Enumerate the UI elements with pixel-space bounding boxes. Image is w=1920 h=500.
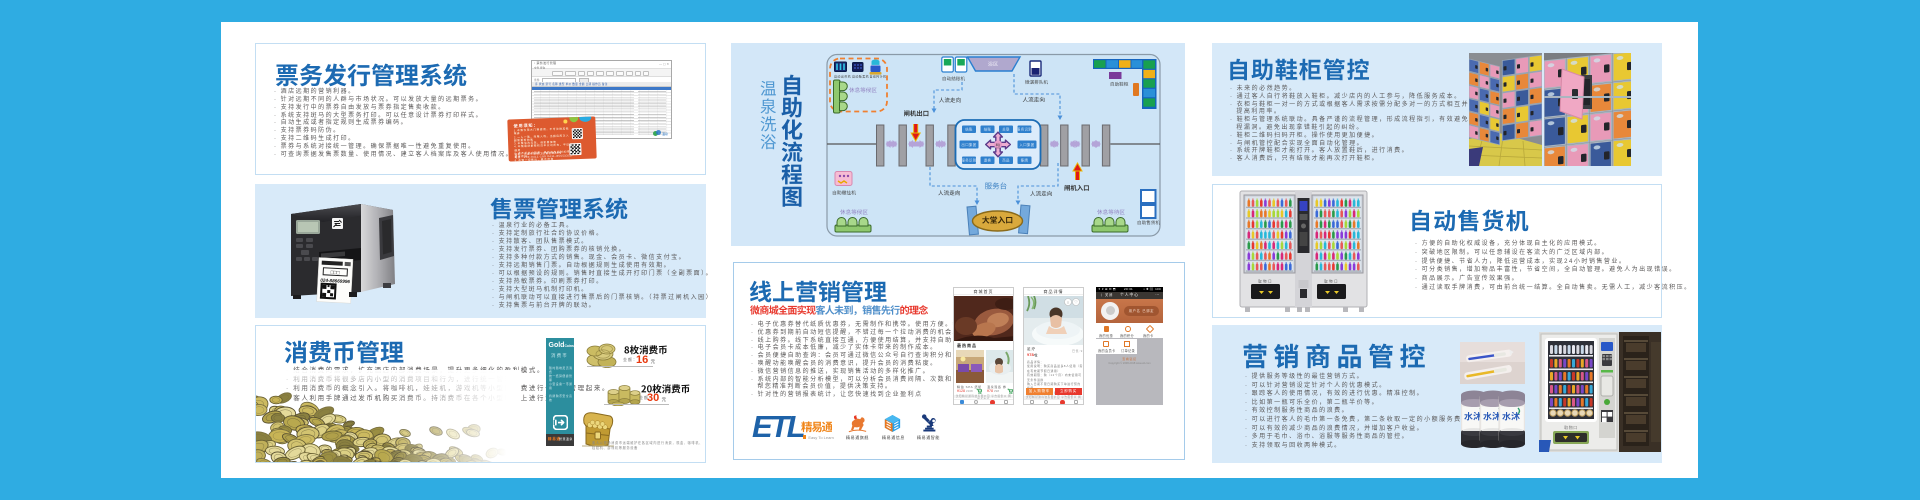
svg-text:取物口: 取物口 [1564, 424, 1578, 430]
svg-text:自动出币机: 自动出币机 [834, 74, 851, 79]
svg-text:出口集团: 出口集团 [961, 142, 976, 147]
svg-text:退换: 退换 [984, 158, 992, 163]
svg-text:取 物 口: 取 物 口 [1258, 279, 1272, 284]
svg-text:服务识别: 服务识别 [961, 158, 976, 163]
svg-text:结账: 结账 [965, 127, 973, 132]
svg-text:♡: ♡ [1074, 300, 1078, 305]
svg-text:关联: 关联 [1002, 127, 1010, 132]
svg-text:入口集团: 入口集团 [1019, 142, 1034, 147]
svg-text:自动榨汁机: 自动榨汁机 [870, 74, 887, 79]
svg-text:商品: 商品 [1002, 158, 1010, 163]
svg-text:结账: 结账 [984, 127, 992, 132]
svg-text:取 物 口: 取 物 口 [1324, 279, 1338, 284]
svg-text:入口: 入口 [996, 146, 1001, 149]
svg-text:集牌: 集牌 [1021, 158, 1029, 163]
svg-text:服务识别: 服务识别 [1017, 127, 1032, 132]
svg-text:自动贩卖机: 自动贩卖机 [852, 74, 869, 79]
svg-text:□□□: □□□ [331, 270, 340, 276]
